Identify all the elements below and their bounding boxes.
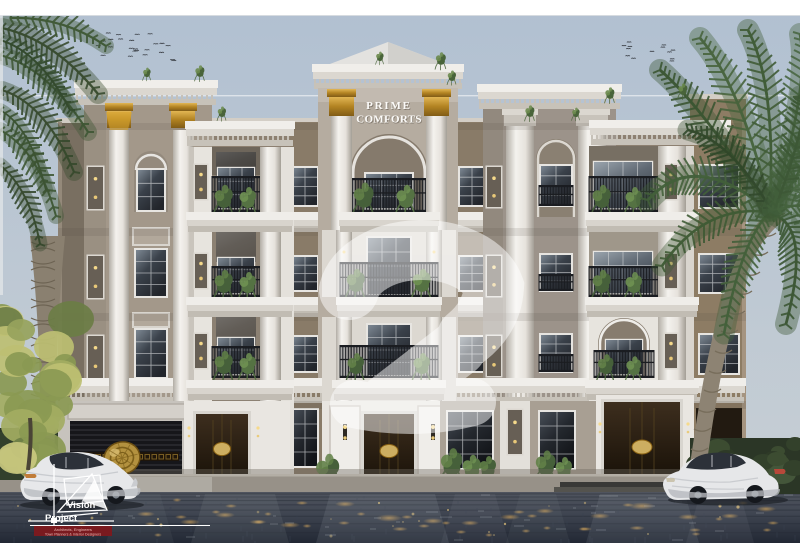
svg-text:Project: Project [45,513,78,524]
svg-text:Architects, Engineers: Architects, Engineers [54,527,92,532]
svg-text:COMFORTS: COMFORTS [356,114,422,126]
svg-text:Town Planners & Interior Desig: Town Planners & Interior Designers [45,533,102,537]
svg-text:Vision: Vision [67,500,96,511]
svg-text:PRIME: PRIME [366,100,412,112]
